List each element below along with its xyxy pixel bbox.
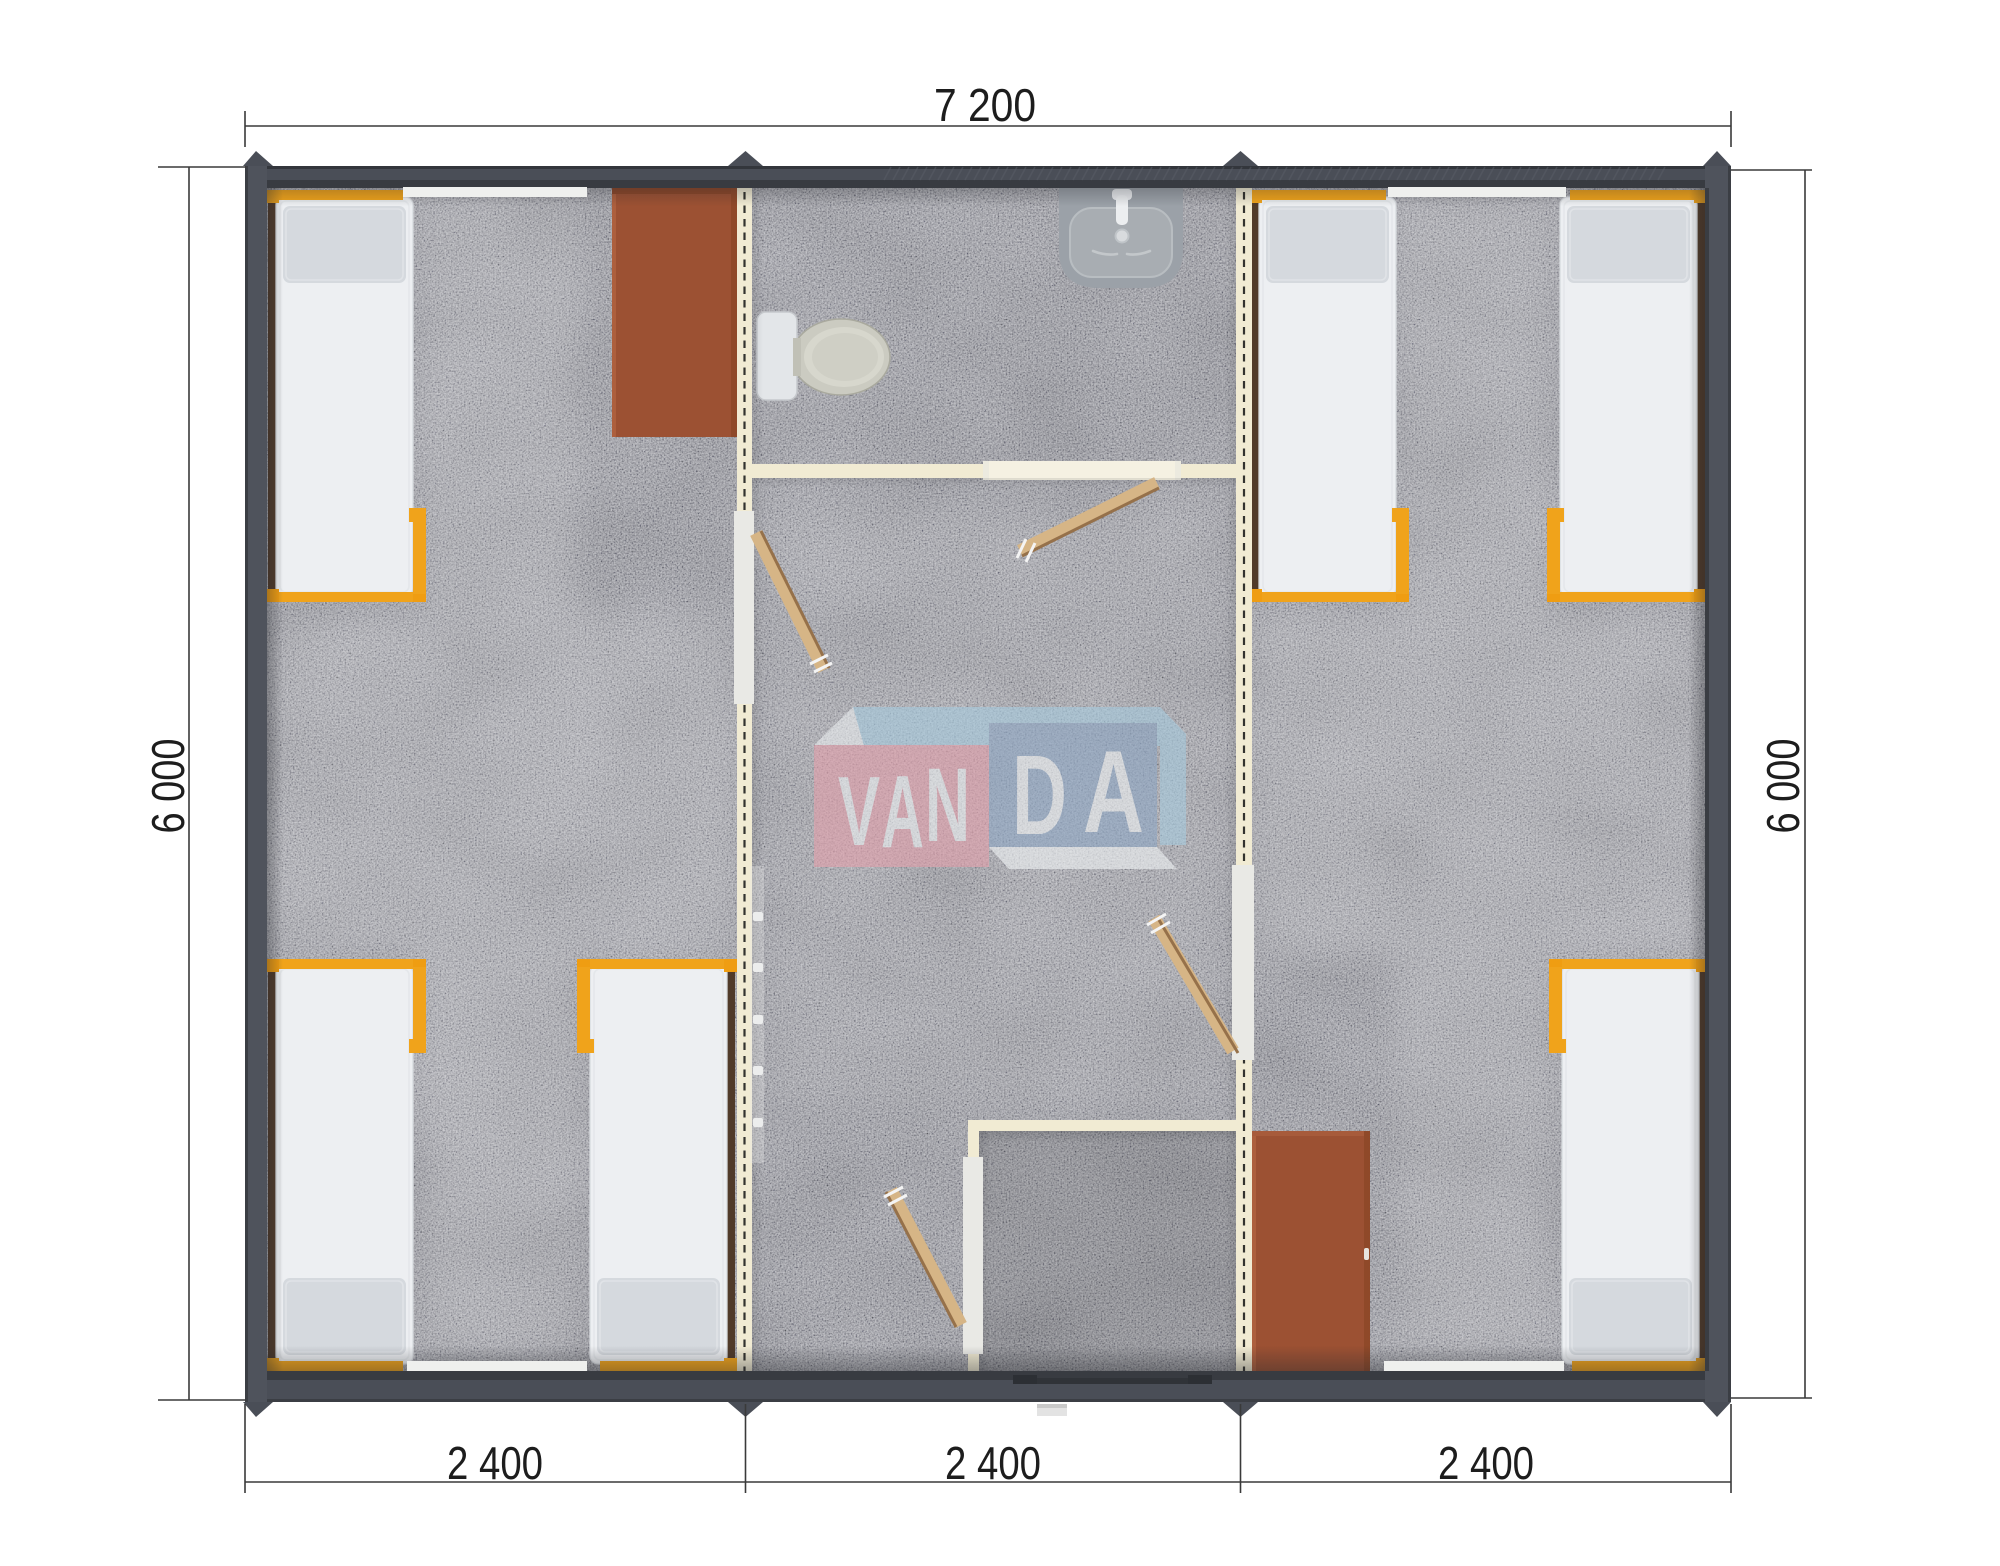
svg-text:A: A bbox=[1083, 726, 1144, 857]
svg-text:A: A bbox=[881, 754, 924, 869]
svg-text:N: N bbox=[925, 747, 970, 864]
svg-text:V: V bbox=[838, 756, 880, 866]
svg-text:6 000: 6 000 bbox=[142, 739, 194, 834]
svg-text:7 200: 7 200 bbox=[934, 79, 1036, 131]
svg-text:D: D bbox=[1012, 732, 1067, 858]
svg-text:2 400: 2 400 bbox=[1438, 1437, 1534, 1489]
svg-text:6 000: 6 000 bbox=[1757, 739, 1809, 834]
svg-text:2 400: 2 400 bbox=[945, 1437, 1041, 1489]
svg-text:2 400: 2 400 bbox=[447, 1437, 543, 1489]
